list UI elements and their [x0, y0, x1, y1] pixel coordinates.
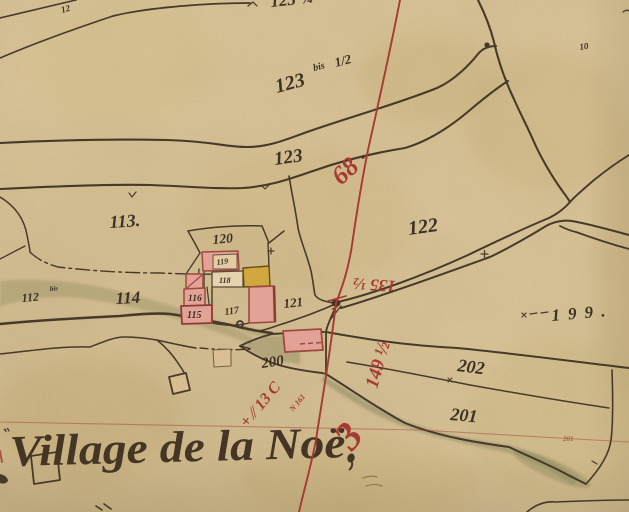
- svg-text:121: 121: [283, 294, 304, 311]
- svg-text:115: 115: [187, 310, 201, 321]
- svg-text:119: 119: [216, 256, 229, 267]
- svg-text:117: 117: [224, 305, 241, 318]
- svg-text:202: 202: [456, 355, 486, 378]
- svg-text:122: 122: [407, 214, 440, 240]
- svg-text:201: 201: [449, 404, 479, 426]
- svg-text:200: 200: [259, 353, 285, 372]
- svg-text:112: 112: [21, 290, 39, 305]
- svg-text:bis: bis: [49, 284, 58, 293]
- svg-text:135 ½: 135 ½: [352, 274, 396, 296]
- svg-text:123: 123: [273, 145, 304, 170]
- svg-text:120: 120: [212, 230, 234, 247]
- svg-text:116: 116: [188, 294, 202, 304]
- svg-text:118: 118: [219, 276, 231, 285]
- svg-text:Village de la Noë: Village de la Noë: [9, 418, 346, 476]
- svg-text:201: 201: [562, 435, 574, 443]
- svg-text:113.: 113.: [109, 210, 141, 232]
- svg-text:114: 114: [115, 288, 141, 308]
